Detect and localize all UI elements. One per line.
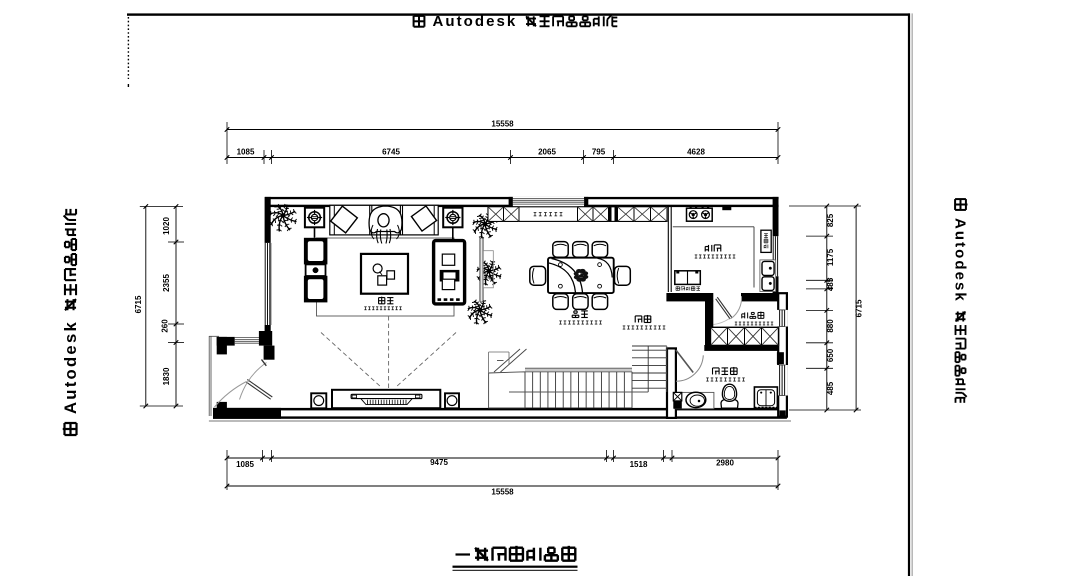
svg-text:1085: 1085 <box>236 460 254 469</box>
svg-text:Autodesk: Autodesk <box>433 13 518 30</box>
svg-text:650: 650 <box>826 348 835 362</box>
svg-text:15558: 15558 <box>491 488 514 497</box>
svg-text:795: 795 <box>592 147 606 156</box>
svg-text:1175: 1175 <box>826 248 835 266</box>
svg-text:2065: 2065 <box>538 147 556 156</box>
svg-text:4628: 4628 <box>687 147 705 156</box>
svg-text:6715: 6715 <box>134 295 143 313</box>
svg-text:6715: 6715 <box>855 299 864 317</box>
svg-text:2355: 2355 <box>162 274 171 292</box>
svg-text:15558: 15558 <box>491 119 514 128</box>
svg-text:880: 880 <box>826 319 835 333</box>
svg-text:1518: 1518 <box>630 460 648 469</box>
svg-text:1020: 1020 <box>162 217 171 235</box>
svg-text:6745: 6745 <box>382 147 400 156</box>
svg-text:Autodesk: Autodesk <box>952 218 969 303</box>
svg-text:1085: 1085 <box>237 147 255 156</box>
svg-text:825: 825 <box>826 213 835 227</box>
svg-text:2980: 2980 <box>716 459 734 468</box>
svg-text:260: 260 <box>161 319 170 333</box>
svg-text:9475: 9475 <box>430 458 448 467</box>
svg-text:Autodesk: Autodesk <box>61 320 80 414</box>
svg-text:1830: 1830 <box>162 367 171 385</box>
svg-text:485: 485 <box>826 381 835 395</box>
